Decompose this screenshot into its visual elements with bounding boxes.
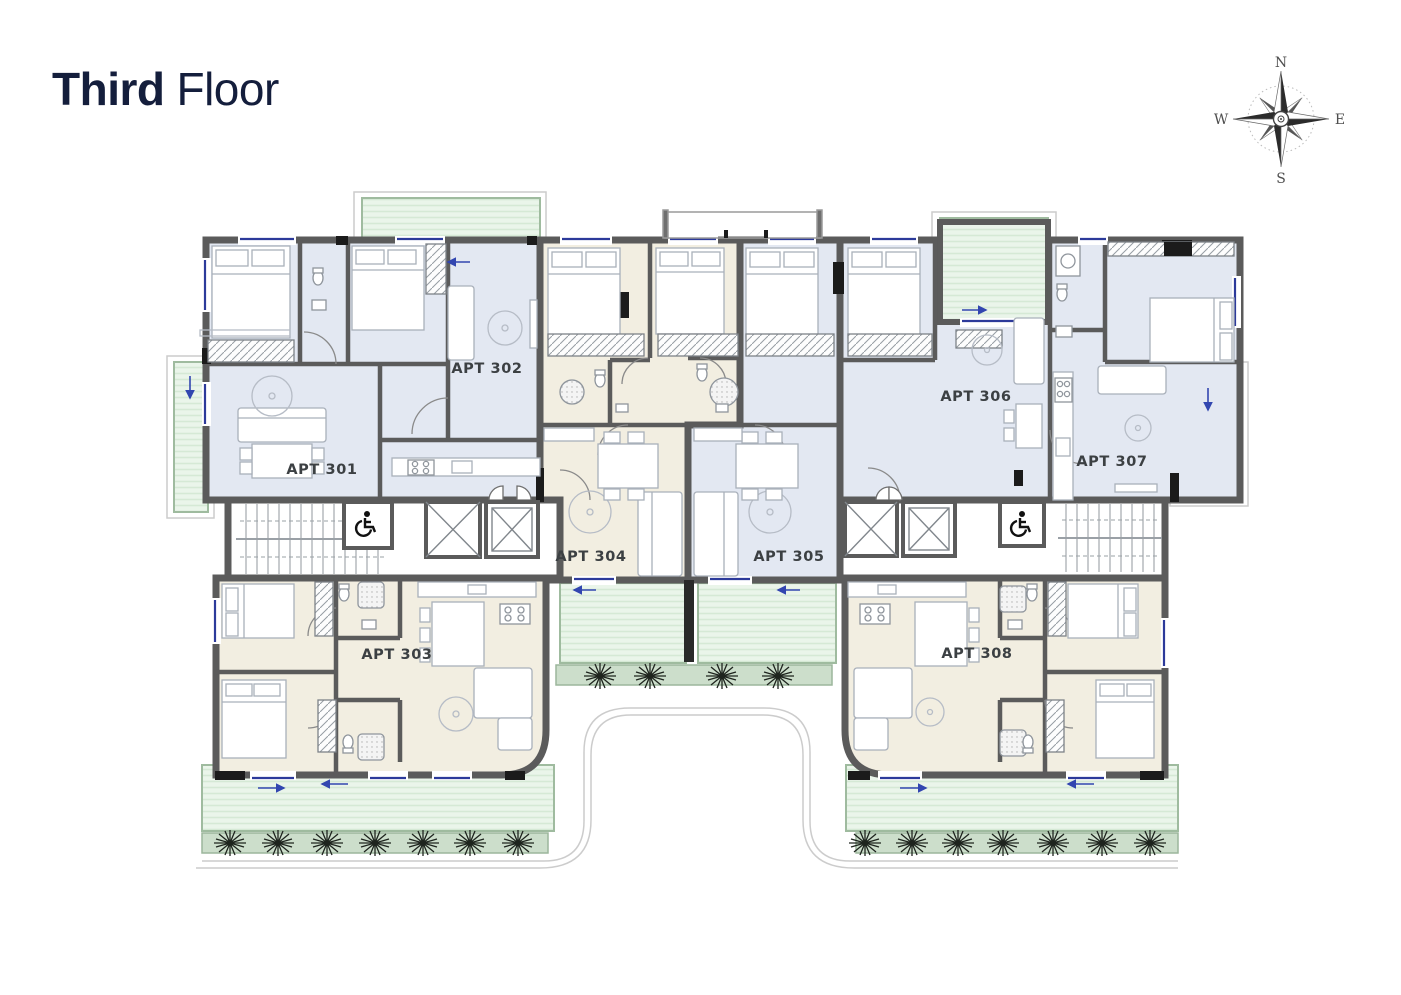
terrace-apt304 [560, 583, 686, 663]
apt-308-label: APT 308 [941, 646, 1012, 662]
balcony-apt306-inset [940, 222, 1048, 322]
compass-east-label: E [1335, 112, 1345, 128]
washing-machine [1056, 246, 1080, 276]
apt-301-label: APT 301 [286, 462, 357, 478]
page-title-bold: Third [52, 63, 164, 115]
accessible-wc-room [1000, 502, 1044, 546]
apt-306-label: APT 306 [940, 389, 1011, 405]
page-title: ThirdFloor [52, 62, 279, 116]
compass-south-label: S [1276, 171, 1286, 187]
apt-304-label: APT 304 [555, 549, 626, 565]
compass-rose-icon: N E S W [1214, 55, 1345, 187]
compass-west-label: W [1214, 112, 1229, 128]
page-title-light: Floor [176, 63, 278, 115]
apt-302-label: APT 302 [451, 361, 522, 377]
accessible-wc-room [344, 502, 392, 548]
juliet-balcony [663, 210, 822, 238]
apt-307-label: APT 307 [1076, 454, 1147, 470]
apt-303-label: APT 303 [361, 647, 432, 663]
apt-305-label: APT 305 [753, 549, 824, 565]
compass-north-label: N [1275, 55, 1287, 71]
floor-plan-page: { "title": { "bold": "Third", "light": "… [0, 0, 1401, 990]
elevator [426, 502, 538, 557]
floor-plan-drawing: APT 301 APT 302 APT 303 APT 304 APT 305 … [0, 0, 1401, 990]
terrace-apt305 [698, 583, 836, 663]
